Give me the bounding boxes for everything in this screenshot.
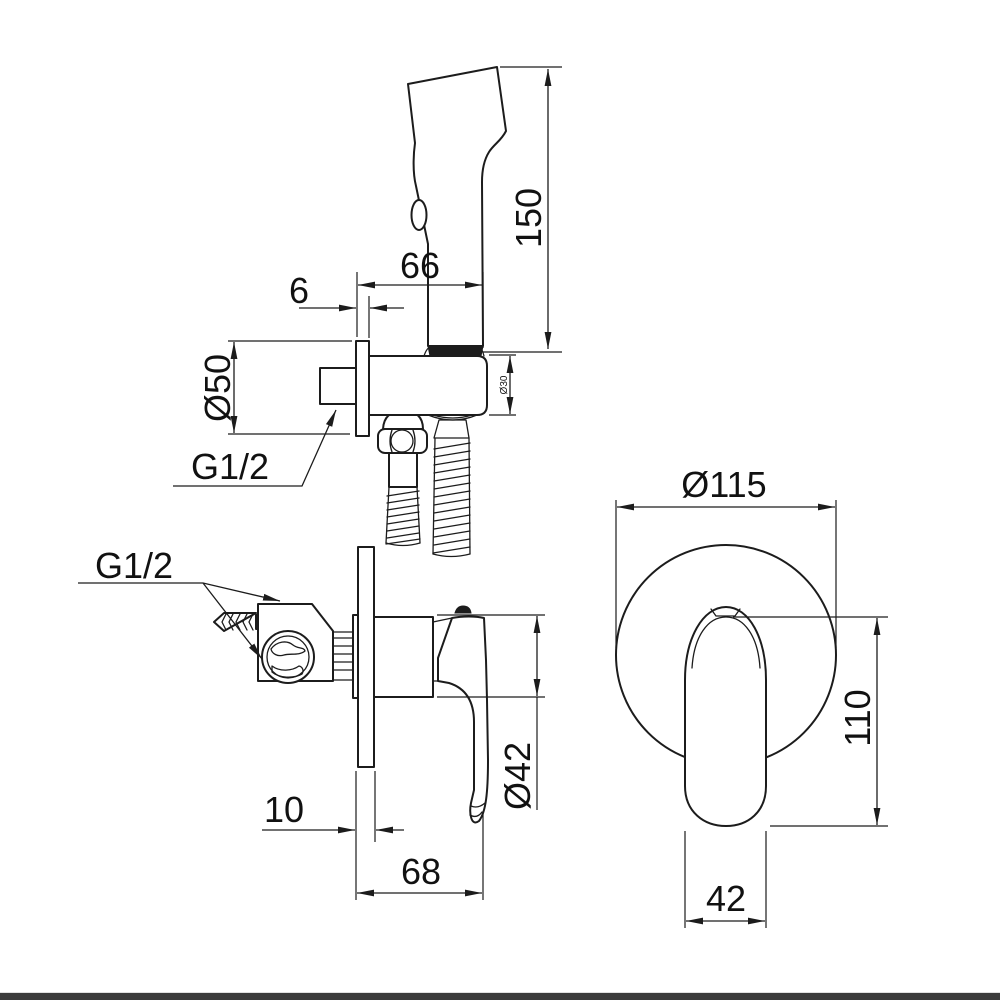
- technical-drawing-page: 150 66 6 Ø50 G1/2 Ø30 G1/2 10: [0, 0, 1000, 1000]
- sprayer-button: [412, 200, 427, 230]
- hose-nut: [378, 429, 427, 453]
- dimension-6: 6: [289, 270, 404, 338]
- dim-label-d115: Ø115: [681, 464, 766, 505]
- mixer-front-view: [616, 545, 836, 826]
- shower-hoses: [378, 420, 470, 557]
- thread-label-g12-holder: G1/2: [191, 446, 269, 487]
- page-bottom-bar: [0, 992, 1000, 1000]
- dim-label-110: 110: [837, 689, 878, 746]
- holder-thread-block: [320, 368, 356, 404]
- dim-label-d30: Ø30: [499, 375, 510, 394]
- mixer-body: [374, 617, 433, 697]
- dim-label-6: 6: [289, 270, 309, 311]
- mixer-escutcheon-side: [358, 547, 374, 767]
- dim-label-150: 150: [508, 188, 549, 248]
- dimension-68: 68: [357, 812, 483, 900]
- valve-cartridge: [262, 631, 314, 683]
- dim-label-d42-side: Ø42: [497, 742, 538, 810]
- hose-right: [433, 420, 470, 557]
- thread-label-g12-mixer: G1/2: [95, 545, 173, 586]
- mixer-handle-side: [438, 617, 488, 823]
- hose-left: [386, 487, 420, 546]
- dim-label-10: 10: [264, 789, 304, 830]
- dimension-42-front: 42: [685, 831, 766, 928]
- bidet-set-drawing: 150 66 6 Ø50 G1/2 Ø30 G1/2 10: [0, 0, 1000, 1000]
- holder-escutcheon: [356, 341, 369, 436]
- mixer-side-view: [214, 547, 488, 822]
- dimension-d30: Ø30: [489, 355, 516, 415]
- sprayer-inlet: [428, 346, 483, 356]
- hand-sprayer: [408, 67, 506, 356]
- dim-label-42-front: 42: [706, 878, 746, 919]
- dim-label-d50: Ø50: [197, 354, 238, 422]
- dimension-10: 10: [262, 771, 404, 900]
- leader-g12-mixer: G1/2: [78, 545, 280, 659]
- dim-label-66: 66: [400, 245, 440, 286]
- holder-body: [369, 356, 487, 415]
- dim-label-68: 68: [401, 851, 441, 892]
